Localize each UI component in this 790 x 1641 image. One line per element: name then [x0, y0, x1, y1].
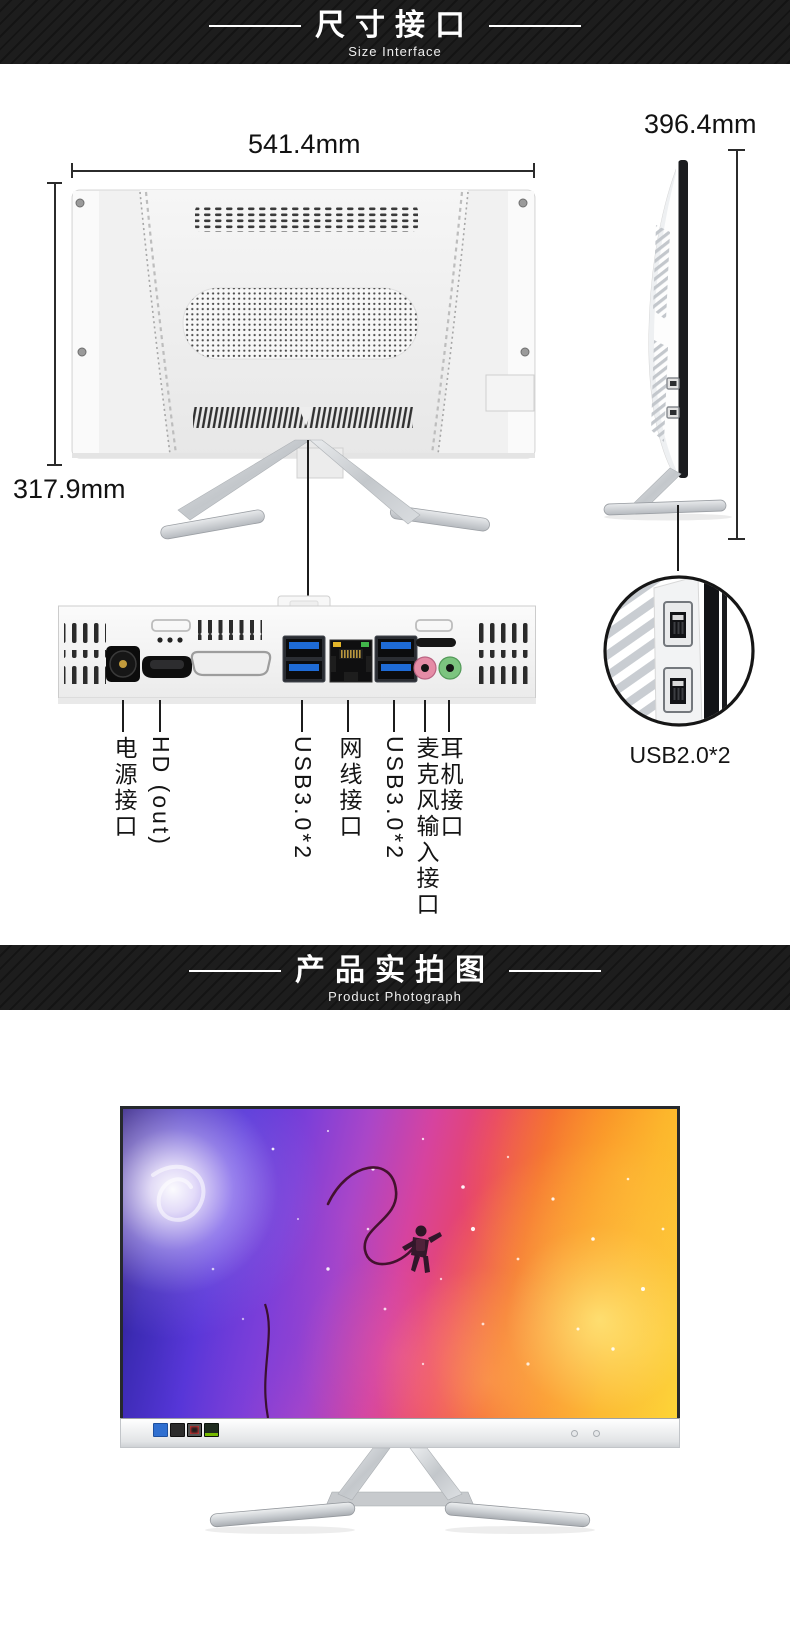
side-usb-callout — [600, 572, 758, 730]
strip-vent-left-upper — [64, 620, 106, 644]
astronaut — [402, 1226, 442, 1274]
measure-line-width — [72, 170, 534, 172]
banner-product-photo: 产品实拍图 Product Photograph — [0, 945, 790, 1010]
side-screen-gap — [676, 160, 679, 478]
front-stand — [120, 1448, 680, 1558]
page: {"banners":{"size_interface":{"title":"尺… — [0, 0, 790, 1641]
rear-panel-left-rim — [73, 191, 99, 457]
measure-line-panel-height — [54, 183, 56, 466]
stand-shadow — [445, 1526, 595, 1534]
wallpaper-artwork — [123, 1109, 683, 1418]
mic-jack — [414, 657, 436, 679]
port-leader-line — [122, 700, 124, 732]
banner-size-interface-inner: 尺寸接口 Size Interface — [0, 0, 790, 59]
side-usb-port — [667, 378, 679, 389]
hinge-leader-line — [307, 440, 309, 598]
callout-content — [600, 572, 727, 730]
banner-left-line — [209, 25, 301, 27]
rear-label-plate — [486, 375, 534, 411]
port-label-usb3-1: USB3.0*2 — [289, 736, 316, 861]
logo-sticker — [187, 1423, 202, 1437]
callout-usb-port — [664, 602, 692, 646]
port-label-usb3-2: USB3.0*2 — [381, 736, 408, 861]
banner-size-subtitle: Size Interface — [0, 44, 790, 59]
strip-vent-dot — [167, 637, 172, 642]
strip-vent-right-upper — [478, 620, 532, 644]
rear-view-illustration — [60, 182, 540, 547]
screw-icon — [78, 348, 86, 356]
port-label-power: 电源接口 — [110, 736, 137, 840]
product-monitor — [120, 1106, 680, 1448]
banner-product-photo-inner: 产品实拍图 Product Photograph — [0, 945, 790, 1004]
screw-icon — [76, 199, 84, 207]
port-leader-line — [424, 700, 426, 732]
rear-speaker-oval-holes — [183, 288, 418, 359]
usb3-ports-1 — [283, 636, 325, 682]
nvidia-sticker — [204, 1423, 219, 1437]
tether-lower-curve — [265, 1304, 269, 1418]
banner-left-line — [189, 970, 281, 972]
callout-screen-edge — [704, 572, 719, 730]
banner-product-title: 产品实拍图 — [295, 955, 495, 987]
port-leader-line — [393, 700, 395, 732]
hdmi-port — [142, 656, 192, 678]
dc-power-port — [106, 646, 140, 682]
spec-sticker — [170, 1423, 185, 1437]
strip-black-slot — [416, 638, 456, 647]
port-label-lan: 网线接口 — [335, 736, 362, 840]
screw-icon — [519, 199, 527, 207]
usb3-ports-2 — [375, 636, 417, 682]
rear-top-vent — [195, 205, 418, 232]
port-strip-shelf — [58, 698, 536, 704]
stand-left-foot — [210, 1502, 356, 1528]
side-screen-edge — [678, 160, 688, 478]
strip-vent-dot — [157, 637, 162, 642]
port-leader-line — [448, 700, 450, 732]
vga-knockout-outline — [192, 652, 270, 675]
rear-port-strip — [58, 594, 536, 706]
measure-tick — [533, 163, 535, 178]
dimension-total-height-label: 396.4mm — [644, 109, 757, 140]
star-field — [212, 1130, 665, 1366]
banner-right-line — [489, 25, 581, 27]
menu-button[interactable] — [593, 1430, 600, 1437]
port-leader-line — [301, 700, 303, 732]
banner-right-line — [509, 970, 601, 972]
dimension-width-label: 541.4mm — [248, 129, 361, 160]
banner-size-title: 尺寸接口 — [315, 10, 475, 42]
port-leader-line — [347, 700, 349, 732]
astronaut-tether — [328, 1167, 414, 1264]
monitor-bezel — [120, 1106, 680, 1418]
port-label-headphone: 耳机接口 — [436, 736, 463, 840]
strip-vent-dot — [177, 637, 182, 642]
stand-right-foot — [445, 1502, 591, 1528]
monitor-chin — [120, 1418, 680, 1448]
port-leader-line — [159, 700, 161, 732]
rear-panel-right-rim — [508, 191, 534, 457]
rear-stand-left-foot — [160, 509, 266, 540]
side-usb-label: USB2.0*2 — [595, 742, 765, 769]
power-button[interactable] — [571, 1430, 578, 1437]
stand-shadow — [205, 1526, 355, 1534]
ethernet-port — [330, 640, 372, 682]
headphone-jack — [439, 657, 461, 679]
strip-vent-right-lower — [478, 650, 532, 684]
port-label-mic: 麦克风输入接口 — [412, 736, 439, 918]
side-stand-foot — [604, 500, 726, 515]
intel-sticker — [153, 1423, 168, 1437]
side-usb-leader-line — [677, 505, 679, 571]
banner-product-subtitle: Product Photograph — [0, 989, 790, 1004]
callout-usb-port — [664, 668, 692, 712]
side-view-illustration — [590, 150, 750, 550]
galaxy-swirl — [153, 1167, 203, 1220]
strip-vent-middle — [198, 620, 262, 640]
port-label-hd-out: HD (out) — [147, 736, 174, 847]
banner-size-interface: 尺寸接口 Size Interface — [0, 0, 790, 64]
side-usb-port — [667, 407, 679, 418]
strip-vent-left-lower — [64, 650, 106, 684]
screw-icon — [521, 348, 529, 356]
measure-tick — [71, 163, 73, 178]
